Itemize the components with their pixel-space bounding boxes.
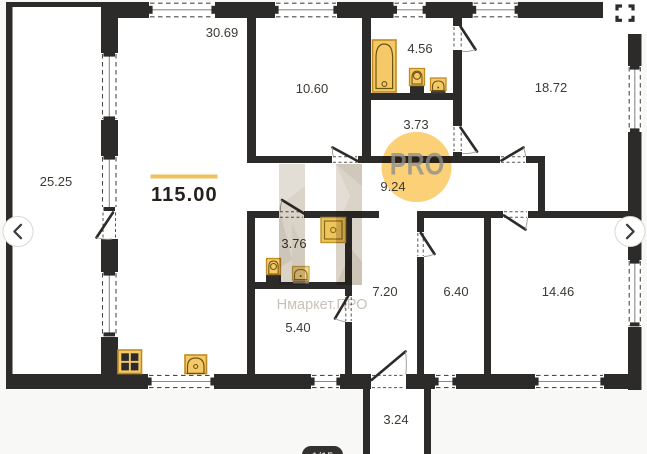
svg-text:5.40: 5.40 xyxy=(285,320,310,335)
svg-text:4.56: 4.56 xyxy=(407,41,432,56)
svg-text:10.60: 10.60 xyxy=(296,81,329,96)
svg-text:9.24: 9.24 xyxy=(380,179,405,194)
svg-text:30.69: 30.69 xyxy=(206,25,239,40)
svg-text:Нмаркет.ПРО: Нмаркет.ПРО xyxy=(277,297,368,313)
svg-text:PRO: PRO xyxy=(390,147,445,182)
svg-text:25.25: 25.25 xyxy=(40,174,73,189)
svg-text:14.46: 14.46 xyxy=(542,284,575,299)
svg-text:3.73: 3.73 xyxy=(403,117,428,132)
svg-text:18.72: 18.72 xyxy=(535,80,568,95)
svg-text:3.24: 3.24 xyxy=(383,412,408,427)
svg-text:115.00: 115.00 xyxy=(151,184,218,206)
svg-text:7.20: 7.20 xyxy=(372,284,397,299)
svg-text:6.40: 6.40 xyxy=(443,284,468,299)
